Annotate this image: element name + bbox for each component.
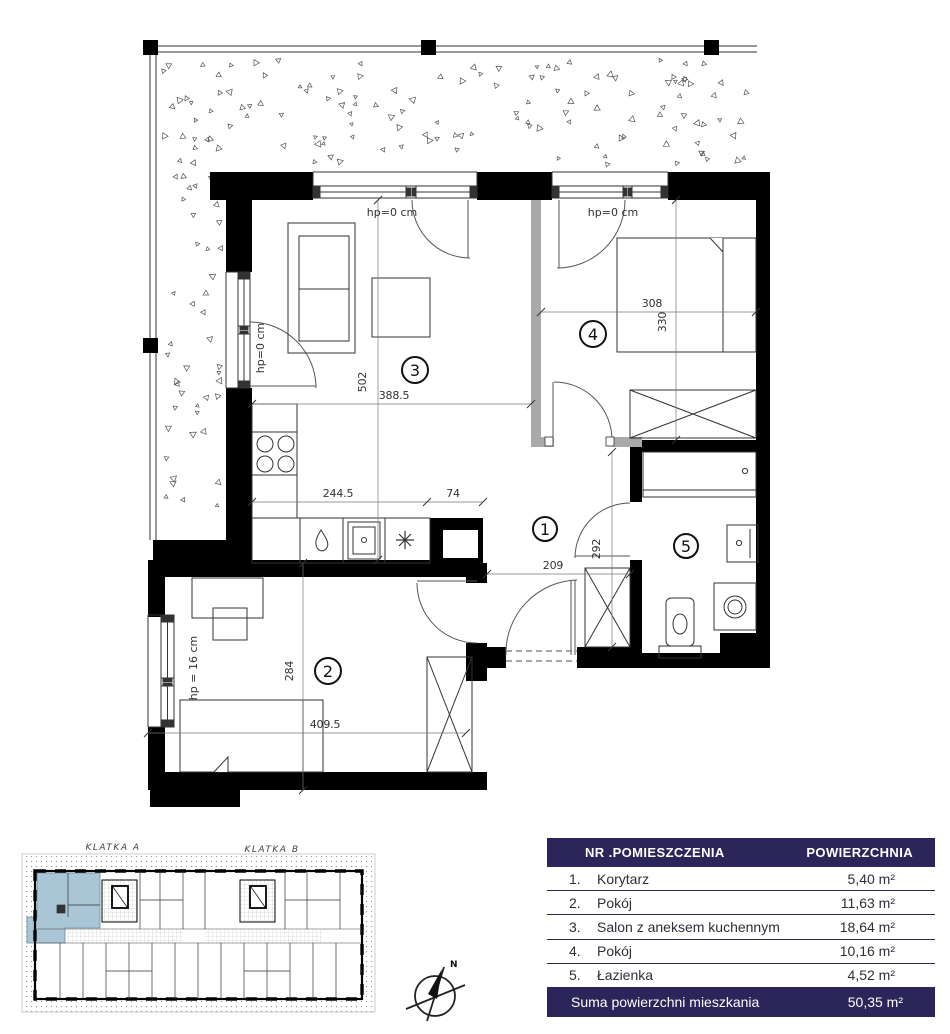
room-badge-living: 3: [402, 357, 428, 383]
bathroom-fixtures: [643, 452, 758, 658]
svg-text:2: 2: [323, 662, 333, 681]
row-name: Korytarz: [595, 871, 848, 887]
dim-room2-height: 284: [283, 661, 296, 682]
room-badge-bathroom: 5: [674, 534, 698, 558]
row-num: 3.: [547, 919, 595, 935]
sink-icon: [348, 522, 380, 559]
floorplan-page: 388.5 502 244.5 74 308 330 209 292 284 4…: [0, 0, 950, 1034]
row-area: 5,40 m²: [848, 871, 935, 887]
table-row: 1. Korytarz 5,40 m²: [547, 867, 935, 891]
header-room-col: NR .POMIESZCZENIA: [547, 845, 806, 860]
hp-living-window: hp=0 cm: [367, 206, 417, 219]
row-name: Salon z aneksem kuchennym: [595, 919, 840, 935]
svg-text:3: 3: [410, 361, 420, 380]
living-window: [313, 172, 477, 198]
row-area: 18,64 m²: [840, 919, 935, 935]
kitchen-shaft: [443, 530, 478, 558]
table-row: 4. Pokój 10,16 m²: [547, 940, 935, 964]
room-badge-bedroom4: 4: [580, 321, 606, 347]
dim-hall-height: 292: [590, 539, 603, 559]
bedroom4-door-swing: [545, 382, 614, 446]
room-badge-hall: 1: [533, 517, 557, 541]
stove-icon: [257, 436, 294, 472]
row-area: 11,63 m²: [841, 895, 935, 911]
washbasin-icon: [727, 525, 758, 562]
hob-asterisk-icon: [396, 531, 414, 549]
klatka-b-label: KLATKA B: [244, 845, 299, 855]
kitchen-counter-left: [252, 404, 297, 518]
table-row: 2. Pokój 11,63 m²: [547, 891, 935, 915]
living-sofa: [288, 223, 355, 353]
room2-bed: [180, 700, 323, 772]
living-balcony-door-window: [226, 272, 250, 388]
row-area: 10,16 m²: [840, 943, 935, 959]
overview-stair-core-b: [240, 880, 275, 922]
overview-stair-core-a: [102, 880, 137, 922]
row-name: Pokój: [595, 895, 841, 911]
table-row: 5. Łazienka 4,52 m²: [547, 964, 935, 988]
dim-living-width: 388.5: [379, 389, 410, 402]
svg-text:4: 4: [588, 325, 598, 344]
bedroom4-window: [552, 172, 668, 198]
dim-shaft: 74: [446, 487, 460, 500]
room2-door-swing: [417, 581, 477, 643]
footer-total: 50,35 m²: [848, 994, 935, 1010]
hall-wardrobe: [585, 568, 630, 647]
row-name: Pokój: [595, 943, 840, 959]
area-table-footer: Suma powierzchni mieszkania 50,35 m²: [547, 988, 935, 1017]
klatka-a-label: KLATKA A: [86, 843, 141, 853]
footer-label: Suma powierzchni mieszkania: [547, 994, 848, 1010]
row-name: Łazienka: [595, 967, 848, 983]
compass-icon: N: [406, 960, 465, 1021]
dim-bedroom4-height: 330: [656, 312, 669, 333]
hp-balcony-door: hp=0 cm: [254, 323, 267, 373]
sink-tap-icon: [316, 530, 328, 551]
svg-text:5: 5: [681, 537, 691, 556]
row-num: 4.: [547, 943, 595, 959]
row-area: 4,52 m²: [848, 967, 935, 983]
building-overview-map: KLATKA A KLATKA B: [22, 843, 375, 1012]
row-num: 5.: [547, 967, 595, 983]
toilet-icon: [659, 598, 701, 658]
area-table: NR .POMIESZCZENIA POWIERZCHNIA 1. Koryta…: [547, 838, 935, 1017]
doors: [250, 200, 630, 661]
hp-room2-window: hp = 16 cm: [187, 636, 200, 700]
entrance-door-swing: [506, 580, 577, 661]
dim-kitchen: 244.5: [323, 487, 354, 500]
bathtub-icon: [643, 452, 756, 497]
area-table-header: NR .POMIESZCZENIA POWIERZCHNIA: [547, 838, 935, 867]
room2-desk: [192, 578, 263, 640]
living-table: [372, 278, 430, 337]
svg-text:1: 1: [540, 520, 550, 539]
bedroom4-wardrobe: [630, 390, 756, 438]
row-num: 2.: [547, 895, 595, 911]
bedroom4-bed: [617, 238, 756, 352]
north-label: N: [450, 960, 458, 970]
dim-room2-width: 409.5: [310, 718, 341, 731]
dim-hall-width: 209: [543, 559, 564, 572]
living-terrace-door-swing: [412, 200, 470, 258]
kitchen-fixtures: [252, 404, 430, 563]
washing-machine-icon: [714, 583, 756, 630]
row-num: 1.: [547, 871, 595, 887]
dim-living-height: 502: [356, 372, 369, 392]
header-area-col: POWIERZCHNIA: [806, 845, 935, 860]
hp-bedroom-window: hp=0 cm: [588, 206, 638, 219]
room-badge-room2: 2: [315, 658, 341, 684]
room2-window: [148, 615, 174, 727]
table-row: 3. Salon z aneksem kuchennym 18,64 m²: [547, 915, 935, 939]
dim-bedroom4-width: 308: [642, 297, 663, 310]
room2-wardrobe: [427, 657, 472, 772]
